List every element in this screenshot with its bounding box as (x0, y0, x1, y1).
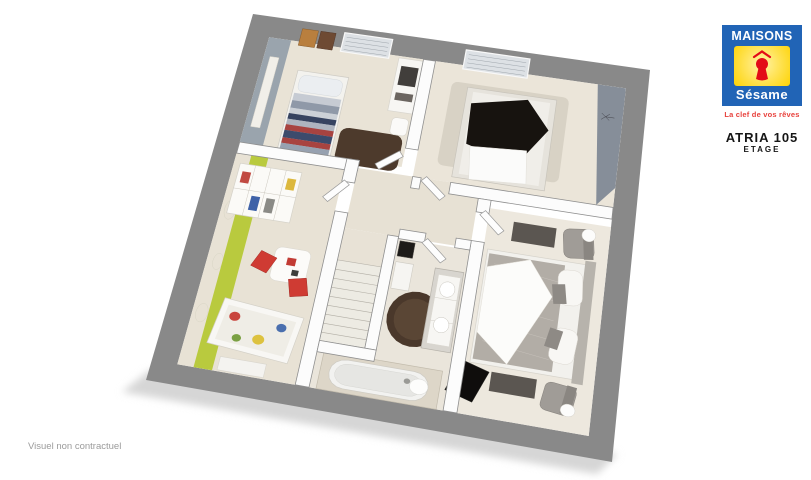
bed-2-sheet (469, 146, 527, 184)
wall-bath-top-b (455, 238, 472, 250)
lamp-1 (582, 229, 596, 242)
floor-label: ETAGE (712, 145, 811, 154)
page-canvas: MAISONS Sésame La clef de vos rêves ATRI… (0, 0, 811, 480)
model-name: ATRIA 105 (712, 130, 811, 145)
wall-master-stub (476, 198, 491, 213)
brand-logo: MAISONS Sésame La clef de vos rêves (712, 20, 811, 119)
crib-toy-green (232, 334, 241, 342)
brand-name-top: MAISONS (731, 28, 792, 44)
kids-chair-2 (288, 278, 307, 297)
kids-table-toy-dark (291, 270, 299, 277)
stair-void-niche (397, 241, 415, 259)
stool-bedroom-1 (390, 118, 409, 136)
brand-tagline: La clef de vos rêves (712, 110, 811, 119)
sink-1 (440, 282, 455, 297)
brand-name-bottom: Sésame (736, 88, 788, 102)
keyhole-badge (734, 46, 790, 86)
tub-lamp (410, 379, 428, 395)
brand-logo-square: MAISONS Sésame (722, 25, 802, 106)
kids-table-toy-red (286, 258, 297, 267)
wall-bedroom2-stub (411, 177, 422, 190)
keyhole-icon (742, 48, 782, 84)
sink-2 (434, 317, 449, 332)
floorplan-render (0, 0, 811, 480)
cushion-master-1 (552, 284, 567, 304)
crib-toy-red (229, 312, 240, 321)
disclaimer-text: Visuel non contractuel (28, 441, 121, 452)
